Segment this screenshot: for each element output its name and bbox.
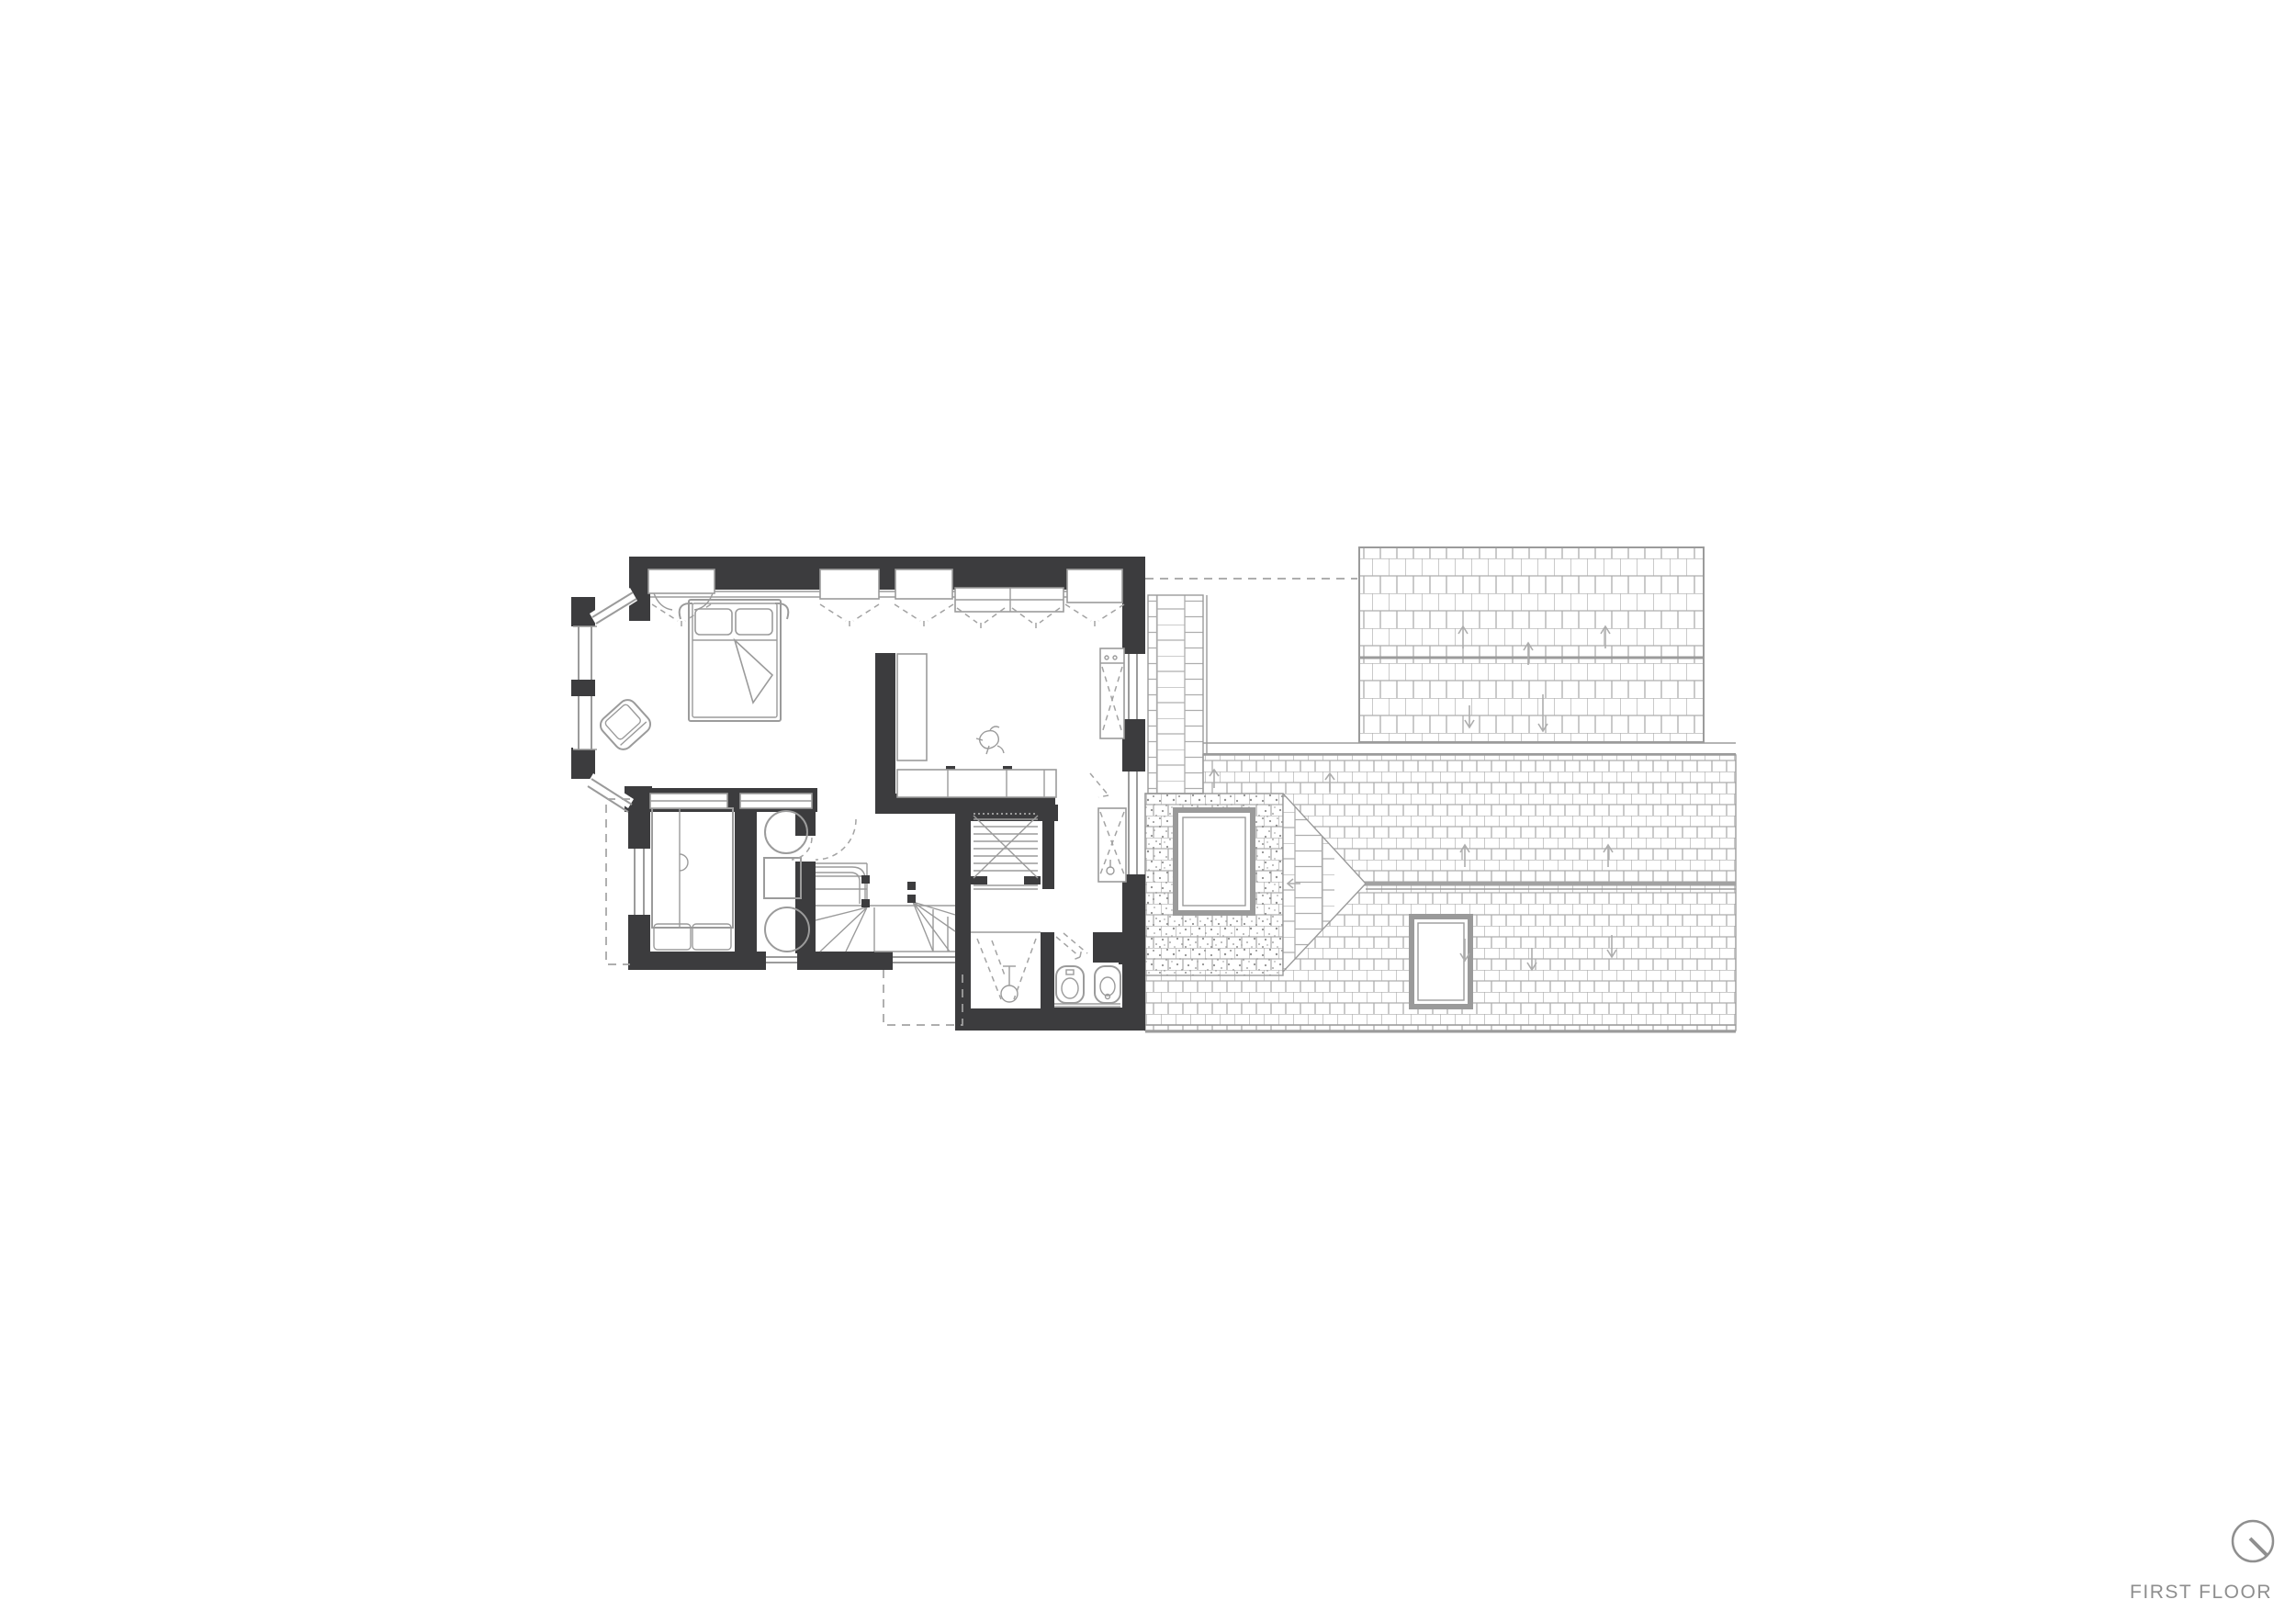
bedroom xyxy=(597,600,788,753)
corridor-door-swing xyxy=(1090,773,1109,797)
low-cabinets xyxy=(897,770,1056,797)
tall-cabinet-panel xyxy=(897,654,927,760)
rooflight-window xyxy=(1176,810,1253,913)
armchair xyxy=(597,696,654,753)
toilet xyxy=(1056,966,1084,1003)
dressing-room xyxy=(897,648,1126,882)
person-figure-glyph xyxy=(976,727,1004,754)
washbasin-unit-upper xyxy=(1100,648,1124,738)
curtain-marks xyxy=(654,593,713,610)
washbasin-unit-lower xyxy=(1098,808,1126,882)
floorplan-drawing: FIRST FLOOR xyxy=(0,0,2296,1622)
upper-roof xyxy=(1359,547,1704,742)
roof-tile-strip xyxy=(1148,595,1207,794)
double-bed xyxy=(680,600,789,721)
title-block: FIRST FLOOR xyxy=(2130,1521,2273,1603)
skylight-window xyxy=(1412,917,1470,1007)
gutter-lines xyxy=(1203,743,1736,754)
drawing-title: FIRST FLOOR xyxy=(2130,1582,2272,1603)
dashed-outlines xyxy=(606,799,962,1025)
flat-roof-stippled xyxy=(1145,794,1283,975)
shower-room xyxy=(971,932,1041,1002)
staircase xyxy=(816,863,955,952)
floor-plan xyxy=(571,557,1145,1031)
newel-posts xyxy=(861,875,916,907)
small-room xyxy=(652,808,733,950)
duvet-fold xyxy=(735,640,772,703)
bidet xyxy=(1095,966,1120,1003)
wc-door-swing xyxy=(1056,933,1087,961)
roof-plan xyxy=(1145,547,1736,1031)
north-indicator-icon xyxy=(2233,1521,2273,1561)
handrail xyxy=(816,867,865,904)
drawing-sheet: FIRST FLOOR xyxy=(0,0,2296,1622)
